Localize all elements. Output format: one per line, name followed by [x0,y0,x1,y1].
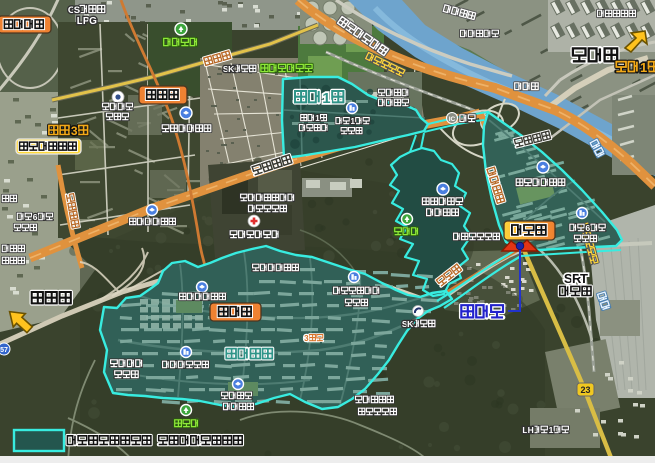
svg-text:6: 6 [33,212,38,222]
svg-text:57: 57 [0,347,8,354]
svg-text:IC: IC [449,116,456,123]
svg-text:3: 3 [71,124,78,138]
svg-text:1: 1 [351,117,356,126]
svg-text:L: L [77,16,83,27]
svg-text:G: G [89,16,97,27]
svg-text:6: 6 [585,223,590,233]
svg-text:1: 1 [315,114,320,123]
svg-text:3: 3 [304,334,309,343]
svg-text:K: K [228,64,235,74]
svg-text:S: S [74,5,80,16]
svg-text:1: 1 [322,90,330,107]
svg-text:1: 1 [549,425,554,435]
svg-text:23: 23 [580,385,590,395]
svg-text:1: 1 [640,60,647,75]
svg-text:K: K [407,319,414,329]
svg-text:T: T [580,271,588,286]
svg-text:H: H [528,425,534,435]
